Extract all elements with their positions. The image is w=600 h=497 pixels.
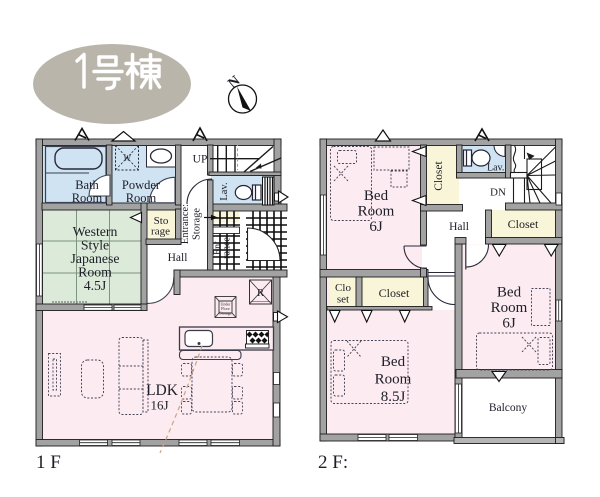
- svg-text:rage: rage: [151, 226, 170, 238]
- svg-text:Room: Room: [375, 372, 412, 388]
- svg-text:R: R: [257, 288, 264, 299]
- svg-text:Balcony: Balcony: [489, 402, 528, 414]
- svg-text:Powder: Powder: [122, 178, 161, 192]
- svg-text:Bed: Bed: [381, 354, 406, 370]
- svg-text:6J: 6J: [369, 219, 383, 235]
- svg-text:Storage: Storage: [192, 208, 203, 240]
- svg-text:Room: Room: [72, 191, 103, 205]
- svg-text:6J: 6J: [502, 316, 516, 332]
- svg-text:DN: DN: [490, 187, 506, 199]
- svg-text:Storage: Storage: [219, 311, 231, 316]
- svg-text:Closet: Closet: [379, 286, 410, 300]
- svg-text:16J: 16J: [150, 398, 168, 413]
- svg-text:Closet: Closet: [508, 217, 539, 231]
- svg-text:Bed: Bed: [497, 285, 522, 301]
- svg-text:1 F: 1 F: [36, 452, 61, 473]
- svg-text:8.5J: 8.5J: [381, 389, 406, 405]
- svg-text:2 F:: 2 F:: [318, 452, 348, 473]
- svg-text:Entrance:: Entrance:: [180, 204, 191, 244]
- svg-text:UP: UP: [193, 154, 208, 166]
- svg-text:Room: Room: [358, 204, 395, 220]
- svg-text:Bath: Bath: [75, 178, 99, 192]
- svg-text:Hall: Hall: [168, 252, 188, 264]
- svg-text:Clo: Clo: [335, 282, 351, 294]
- svg-text:Lav.: Lav.: [487, 163, 504, 174]
- svg-text:rance: rance: [222, 237, 233, 259]
- svg-text:set: set: [337, 294, 349, 306]
- svg-text:Closet: Closet: [433, 161, 445, 191]
- svg-text:Room: Room: [491, 300, 528, 316]
- svg-text:4.5J: 4.5J: [84, 278, 107, 293]
- svg-text:Lav.: Lav.: [219, 182, 230, 200]
- svg-text:Room: Room: [126, 191, 157, 205]
- svg-text:Hall: Hall: [449, 221, 469, 233]
- svg-text:Bed: Bed: [364, 188, 389, 204]
- svg-text:LDK: LDK: [146, 382, 179, 399]
